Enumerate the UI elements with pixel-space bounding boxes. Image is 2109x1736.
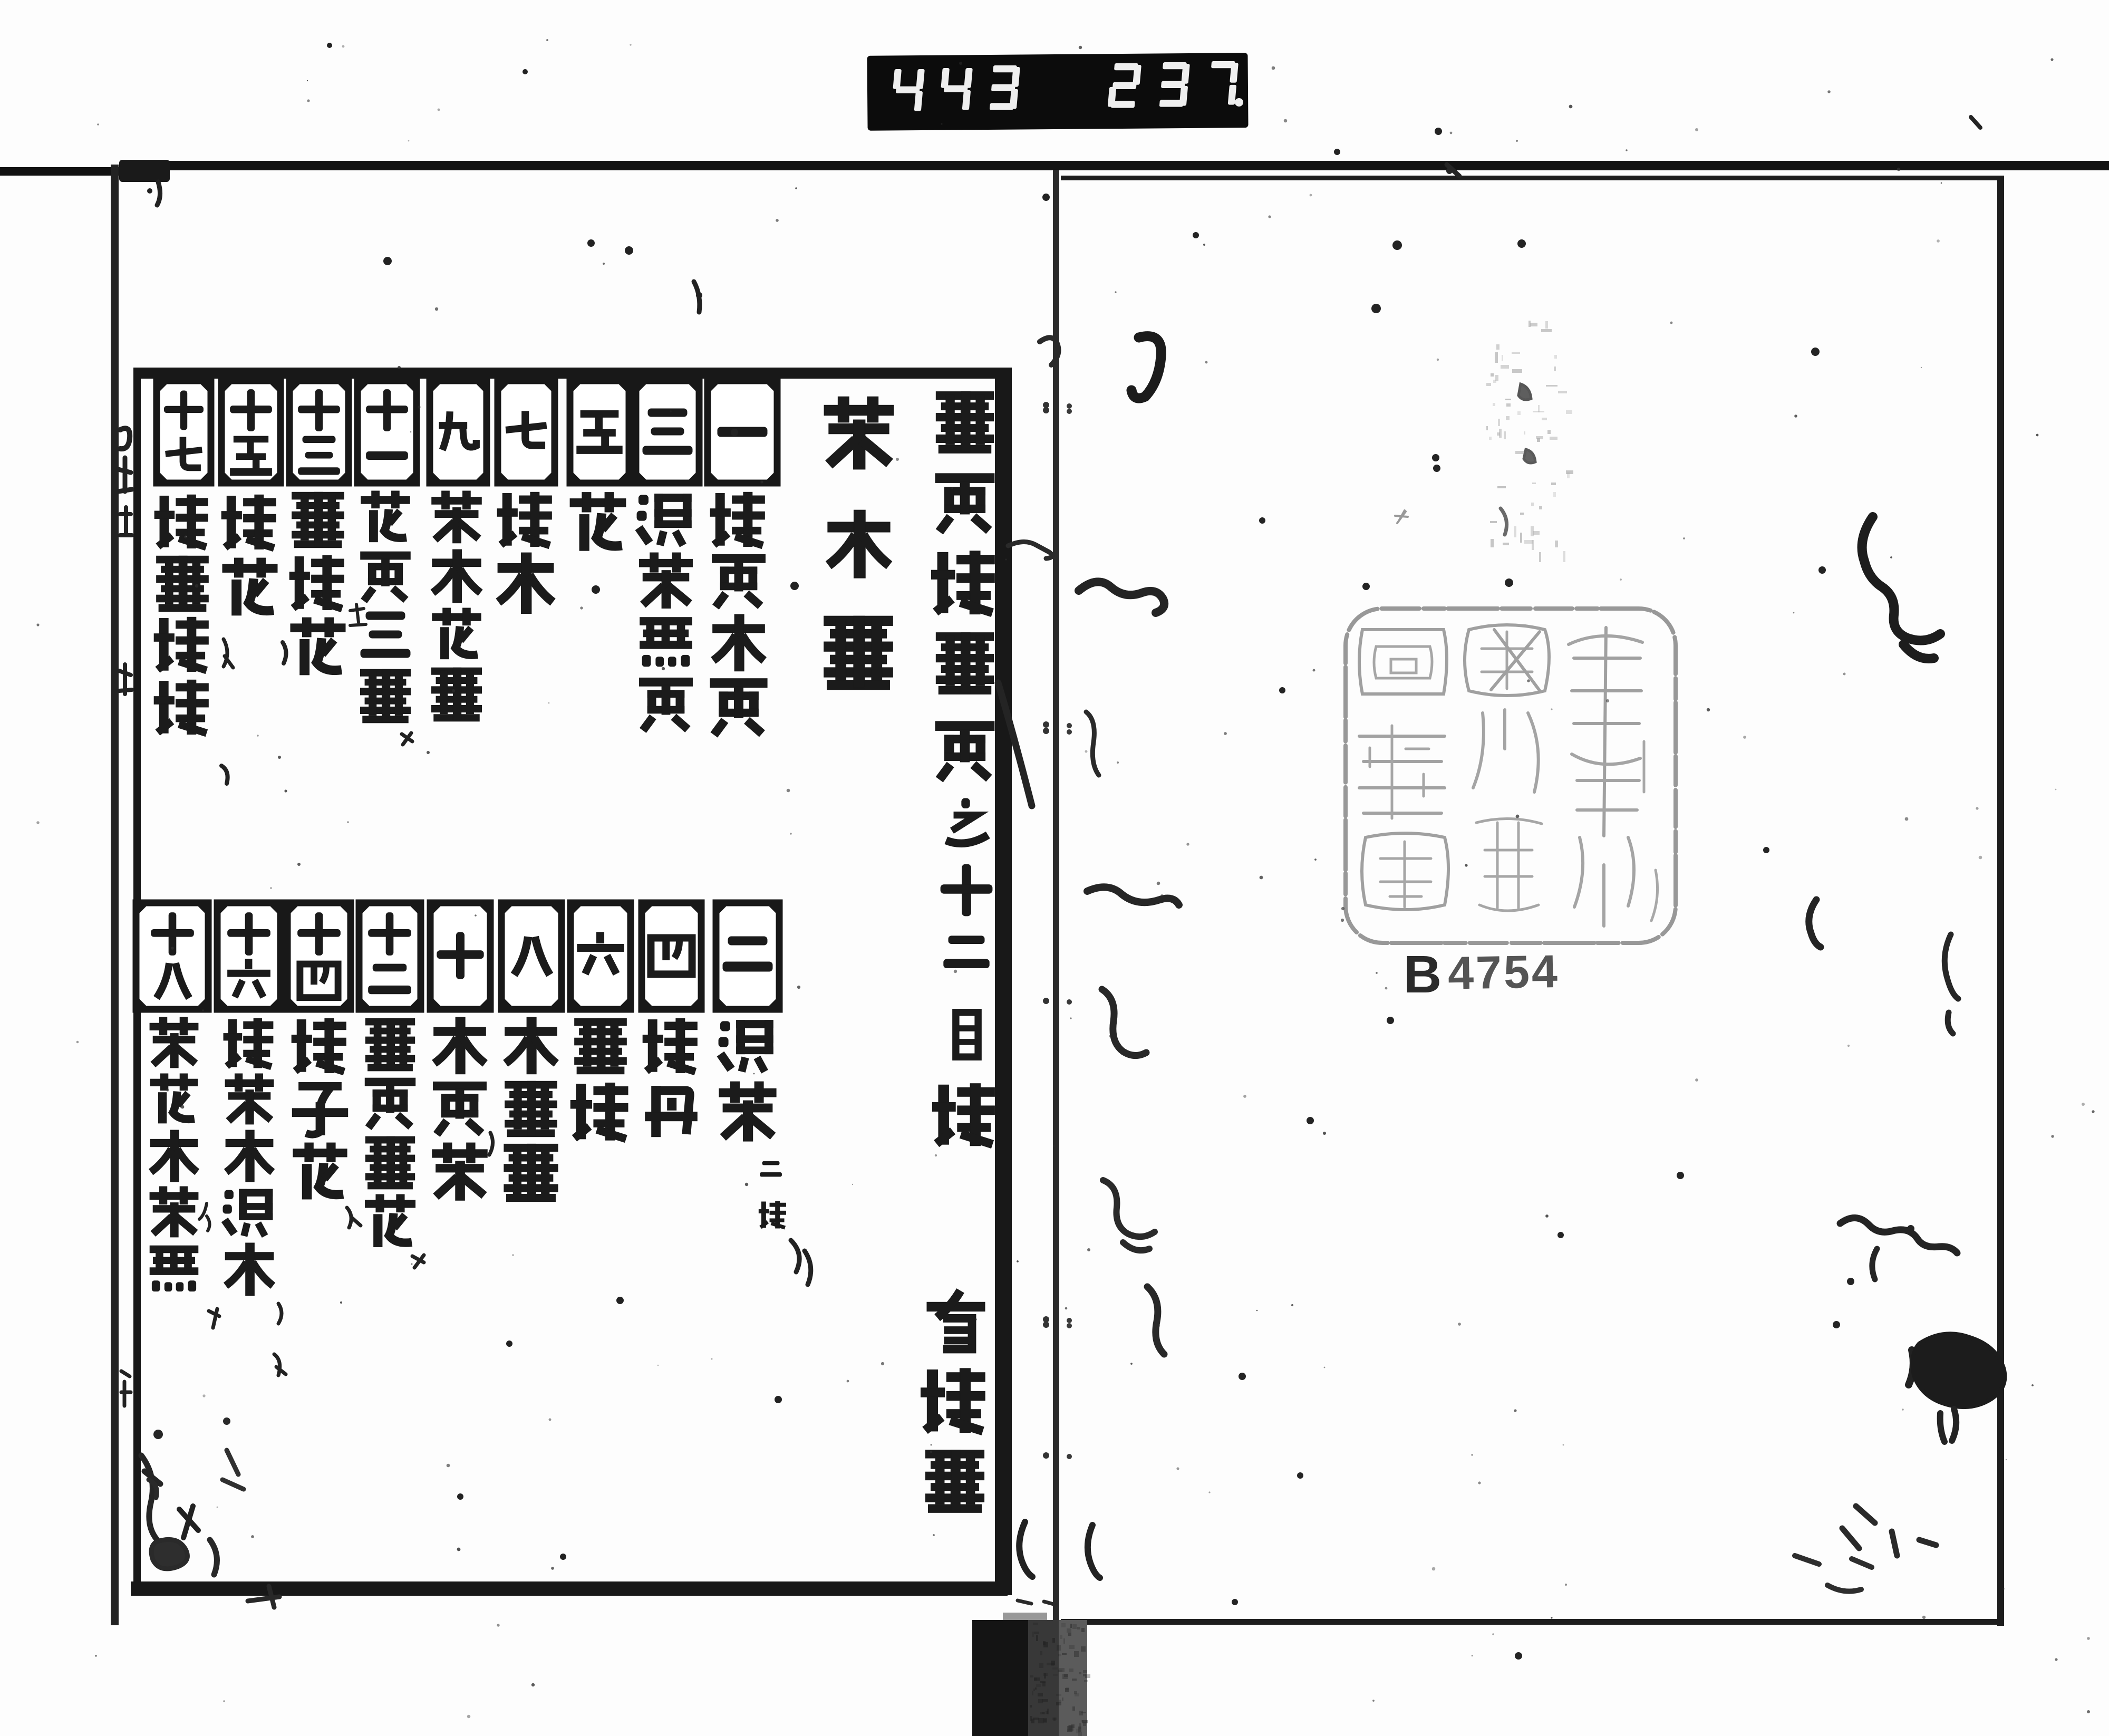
svg-text:4754: 4754 [1447, 945, 1560, 999]
svg-text:B: B [1404, 945, 1442, 1004]
